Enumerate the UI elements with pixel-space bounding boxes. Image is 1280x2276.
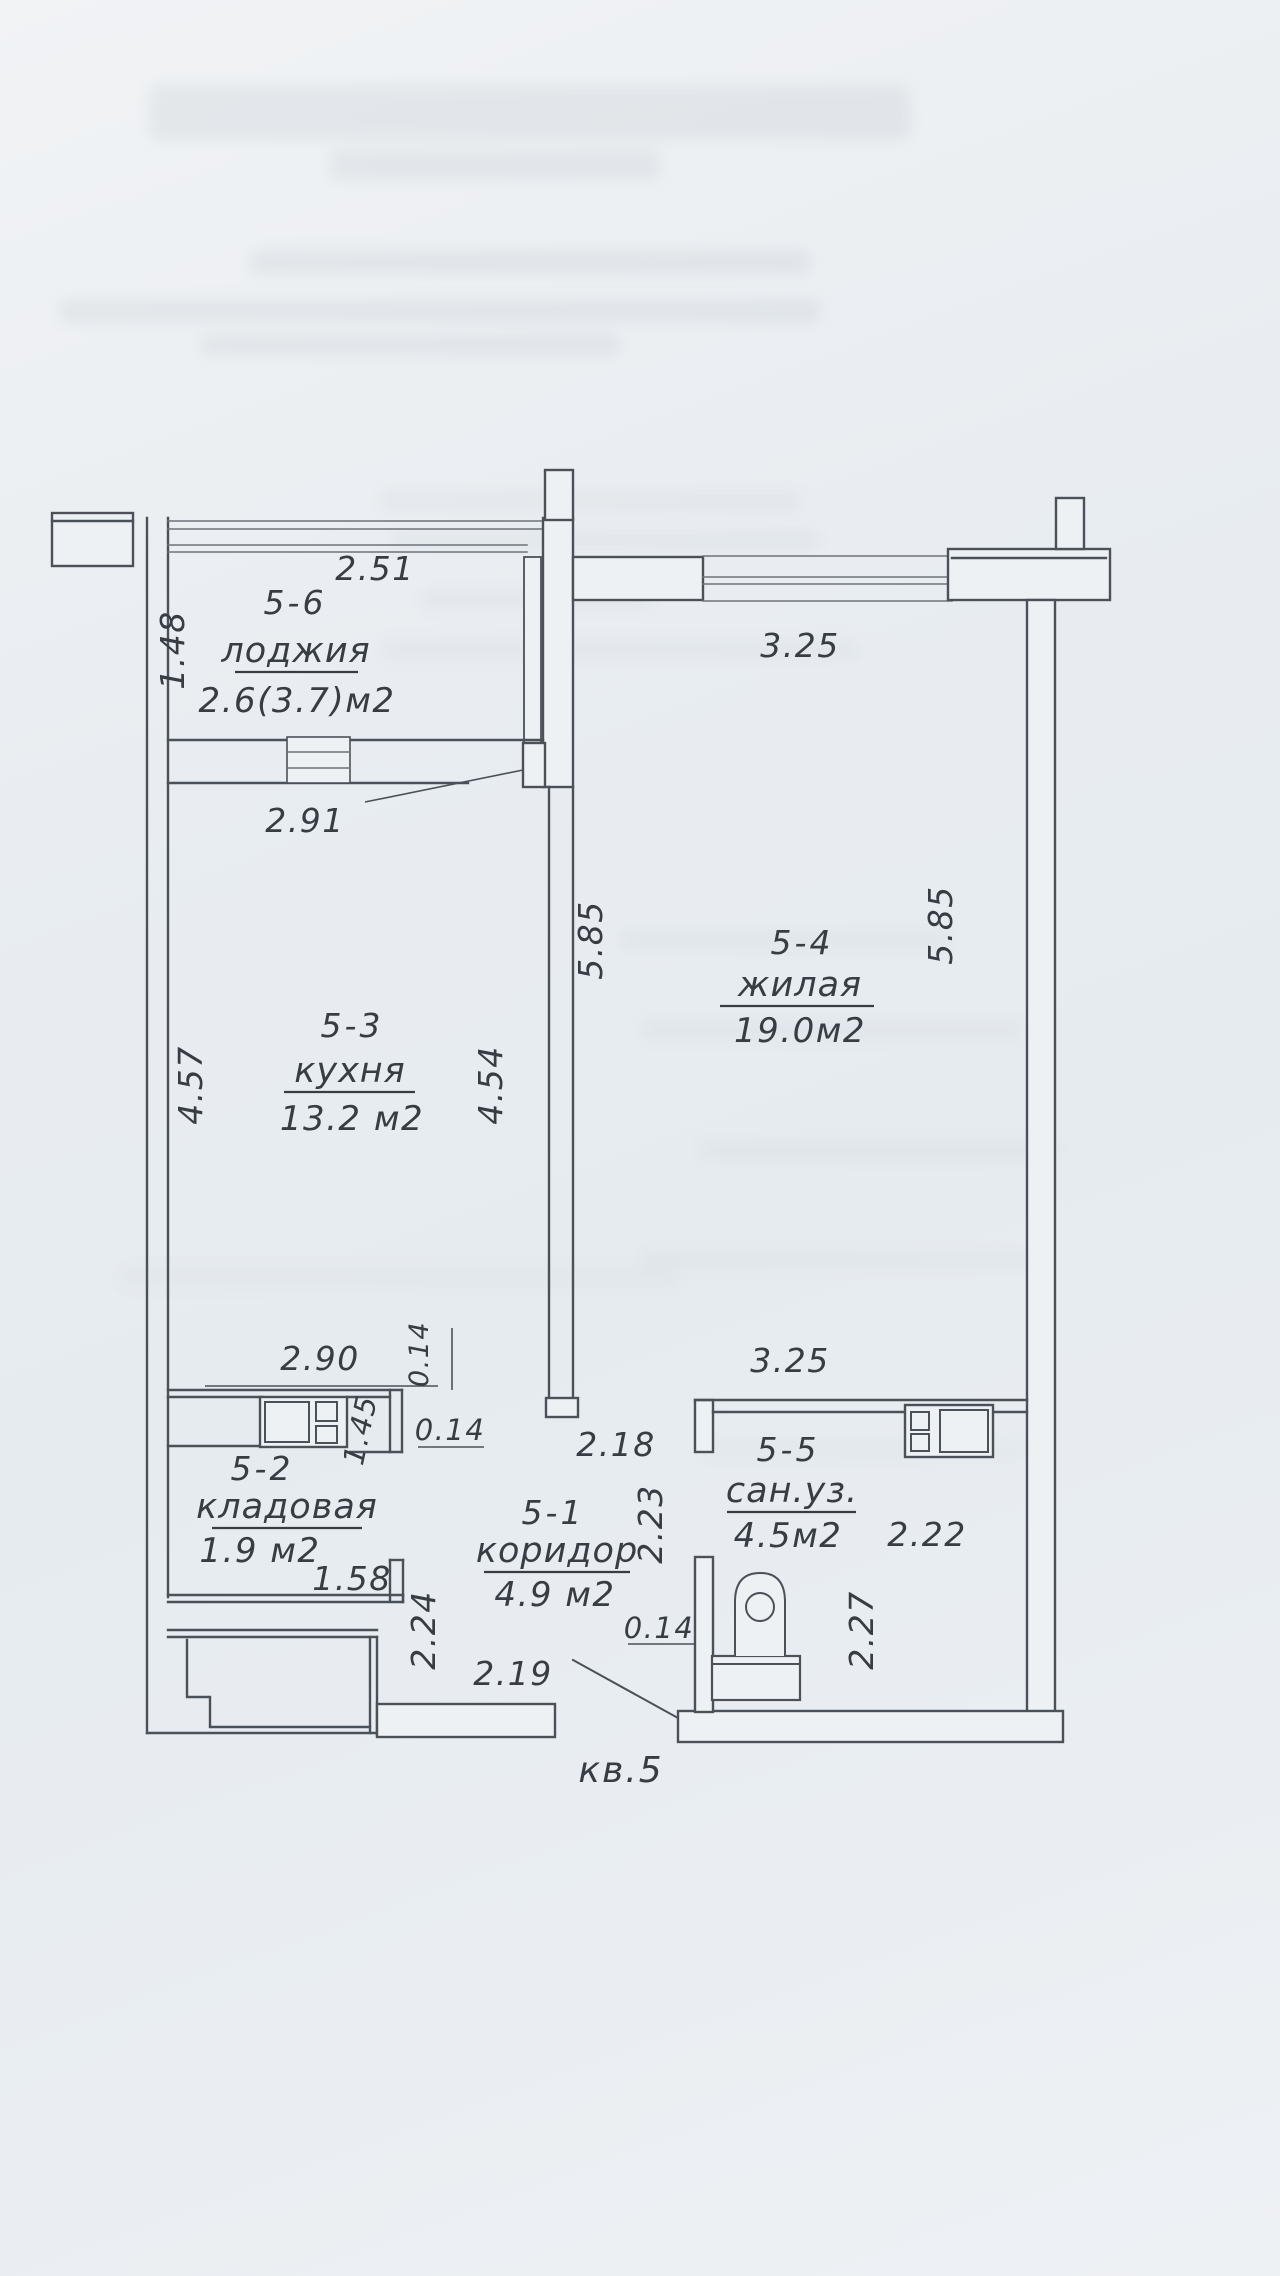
room-bath-name: сан.уз. bbox=[726, 1471, 858, 1511]
living-window bbox=[703, 556, 952, 601]
wall-kitchen-living bbox=[546, 787, 578, 1417]
leader-loggia-width bbox=[365, 770, 523, 802]
dim-bath-height: 2.27 bbox=[842, 1590, 881, 1669]
floor-plan-photo: 2.51 5-6 лоджия 2.6(3.7)м2 1.48 2.91 3.2… bbox=[0, 0, 1280, 2276]
dim-entry-width: 2.19 bbox=[473, 1654, 552, 1693]
dim-entry-depth: 2.24 bbox=[404, 1590, 443, 1669]
wall-living-top bbox=[573, 498, 1110, 601]
room-kitchen-area: 13.2 м2 bbox=[280, 1099, 424, 1139]
room-living-area: 19.0м2 bbox=[734, 1011, 866, 1051]
room-loggia-area: 2.6(3.7)м2 bbox=[199, 681, 396, 721]
dim-wall-top: 0.14 bbox=[404, 1321, 435, 1387]
wall-loggia-living bbox=[543, 470, 573, 787]
wall-left bbox=[147, 518, 168, 1733]
room-kitchen-name: кухня bbox=[294, 1051, 406, 1091]
wall-bath-bottom bbox=[678, 1711, 1063, 1742]
wall-right bbox=[1027, 600, 1055, 1712]
room-living-name: жилая bbox=[737, 965, 862, 1005]
apartment-label: кв.5 bbox=[578, 1750, 663, 1791]
room-pantry-name: кладовая bbox=[196, 1487, 378, 1527]
room-corridor-area: 4.9 м2 bbox=[494, 1575, 615, 1615]
dim-bath-width: 3.25 bbox=[750, 1341, 829, 1380]
wall-stub-top-left bbox=[52, 513, 133, 566]
dim-living-width: 3.25 bbox=[760, 626, 839, 665]
dim-loggia-depth: 1.48 bbox=[153, 610, 192, 689]
room-bath-number: 5-5 bbox=[757, 1430, 820, 1469]
dim-loggia-front: 2.51 bbox=[335, 549, 414, 588]
room-kitchen-number: 5-3 bbox=[321, 1006, 384, 1045]
room-loggia-number: 5-6 bbox=[264, 583, 327, 622]
dim-bath-wall: 0.14 bbox=[624, 1611, 695, 1645]
wall-loggia-kitchen bbox=[168, 737, 543, 783]
dim-living-height-right: 5.85 bbox=[921, 885, 960, 964]
balcony-door bbox=[523, 557, 545, 787]
dim-kitchen-height-right: 4.54 bbox=[471, 1045, 510, 1124]
room-corridor-number: 5-1 bbox=[522, 1493, 585, 1532]
room-living-number: 5-4 bbox=[771, 923, 834, 962]
room-pantry-number: 5-2 bbox=[231, 1449, 294, 1488]
washer-symbol bbox=[905, 1405, 993, 1457]
dim-loggia-width: 2.91 bbox=[265, 801, 344, 840]
dim-corridor-depth: 2.23 bbox=[631, 1484, 670, 1563]
dim-pantry-width: 1.58 bbox=[312, 1559, 391, 1598]
room-loggia-name: лоджия bbox=[220, 631, 370, 671]
kitchen-sink-stove-symbol bbox=[260, 1397, 347, 1447]
entrance-door-leaf bbox=[573, 1660, 678, 1718]
toilet-symbol bbox=[712, 1573, 800, 1700]
wall-below-pantry bbox=[147, 1630, 377, 1735]
kitchen-window bbox=[287, 737, 350, 783]
dim-wall-mid: 0.14 bbox=[415, 1413, 486, 1447]
room-pantry-area: 1.9 м2 bbox=[199, 1531, 320, 1571]
dim-corridor-width: 2.18 bbox=[576, 1425, 655, 1464]
floor-plan-drawing: 2.51 5-6 лоджия 2.6(3.7)м2 1.48 2.91 3.2… bbox=[0, 0, 1280, 2276]
dim-bath-depth-right: 2.22 bbox=[887, 1515, 966, 1554]
wall-bath-left bbox=[695, 1400, 713, 1712]
loggia-glazing bbox=[168, 521, 543, 552]
dim-living-height-left: 5.85 bbox=[571, 900, 610, 979]
wall-corridor-bottom bbox=[377, 1704, 555, 1737]
dim-kitchen-width: 2.90 bbox=[280, 1339, 359, 1378]
dim-kitchen-height-left: 4.57 bbox=[171, 1045, 210, 1124]
room-bath-area: 4.5м2 bbox=[734, 1516, 843, 1556]
room-corridor-name: коридор bbox=[476, 1531, 638, 1571]
